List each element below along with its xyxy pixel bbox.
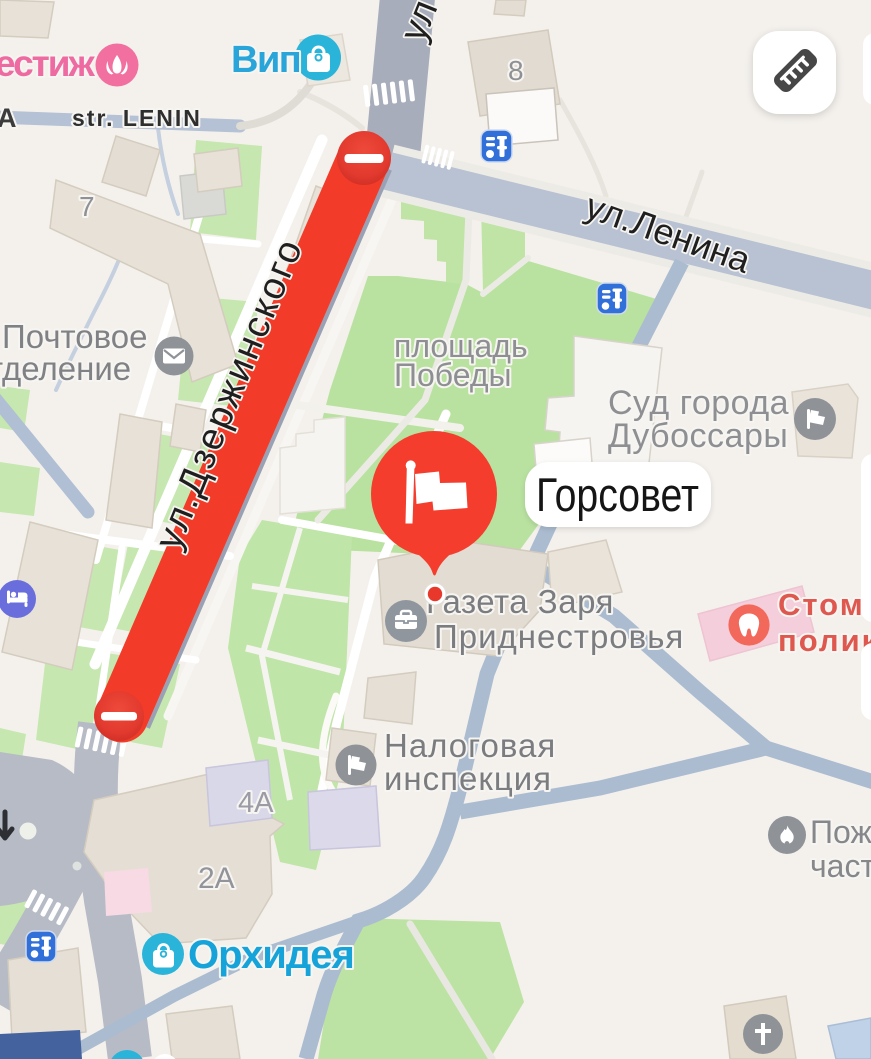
svg-text:Дубоссары: Дубоссары <box>608 417 788 455</box>
svg-text:Стом: Стом <box>778 587 865 622</box>
svg-text:8: 8 <box>508 55 524 86</box>
svg-text:естиж: естиж <box>0 43 96 84</box>
svg-text:7: 7 <box>79 191 95 222</box>
svg-text:2А: 2А <box>198 862 235 895</box>
svg-text:Налоговая: Налоговая <box>384 727 556 764</box>
svg-text:4А: 4А <box>238 787 274 819</box>
svg-text:А: А <box>0 103 17 133</box>
svg-text:Пож: Пож <box>810 814 871 850</box>
svg-text:Горсовет: Горсовет <box>536 468 699 521</box>
svg-text:Приднестровья: Приднестровья <box>434 618 684 655</box>
svg-text:тделение: тделение <box>0 350 131 387</box>
svg-text:Победы: Победы <box>394 357 512 393</box>
svg-text:Газета Заря: Газета Заря <box>426 583 614 620</box>
svg-text:полик: полик <box>778 623 871 658</box>
svg-text:инспекция: инспекция <box>384 760 552 797</box>
svg-text:Вип: Вип <box>231 39 300 81</box>
svg-text:част: част <box>810 848 871 884</box>
svg-text:Орхидея: Орхидея <box>188 933 354 977</box>
svg-text:str. LENIN: str. LENIN <box>72 105 202 131</box>
